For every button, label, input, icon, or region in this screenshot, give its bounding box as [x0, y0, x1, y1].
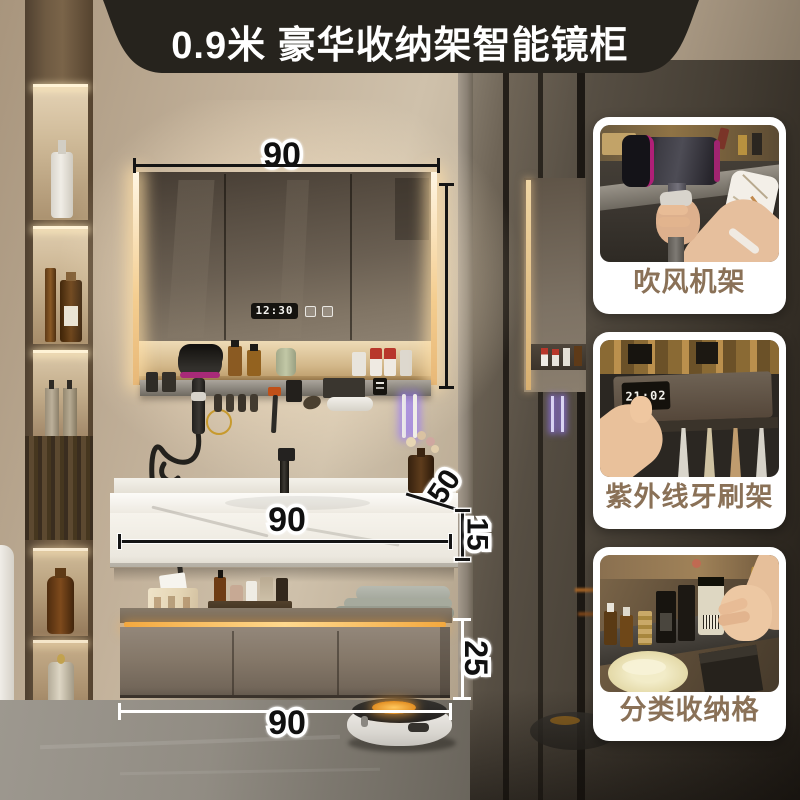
dim-cap	[453, 697, 471, 700]
dim-cap	[455, 558, 470, 561]
banner-title: 0.9米 豪华收纳架智能镜柜	[110, 14, 690, 69]
glass-frame-bar	[577, 60, 585, 800]
niche-led-line	[33, 84, 88, 87]
cabinet-body	[120, 627, 450, 698]
photo-dryer-rim	[714, 140, 720, 182]
shelf-amber-bottle	[228, 346, 242, 376]
gold-towel-ring	[206, 409, 232, 435]
photo-flower-accent	[692, 559, 701, 568]
reflected-uv-toothbrush	[551, 396, 554, 432]
feature-card-label: 紫外线牙刷架	[593, 475, 786, 514]
bottle-cap	[698, 577, 724, 586]
leather-hook-strap	[238, 394, 246, 412]
flower-bottle-neck	[417, 448, 425, 457]
photo-dark-box	[699, 645, 763, 692]
dim-cap	[133, 158, 136, 173]
photo-handle-tip	[668, 237, 684, 262]
hair-dryer-collar	[191, 392, 206, 401]
robot-sensor-slot	[408, 723, 429, 732]
led-strip-left	[133, 172, 139, 385]
led-strip-right	[431, 172, 437, 385]
white-pump-bottle	[246, 581, 257, 603]
shelf-bottle-cap	[250, 344, 258, 351]
shelf-green-bottle	[276, 348, 296, 376]
floor-streak	[120, 768, 380, 776]
drawer-seam	[232, 631, 234, 695]
dropper-cap	[218, 570, 223, 578]
jar-highlight	[622, 659, 666, 675]
photo-gold-bottle	[738, 135, 747, 155]
reflected-bottle	[574, 346, 582, 366]
vase-neck	[55, 568, 66, 578]
dim-cabinet-width: 90	[257, 706, 317, 740]
niche-led-line	[33, 548, 88, 551]
photo-dropper-cap	[607, 603, 614, 612]
photo-shelf-item	[628, 344, 652, 364]
storage-compartments-photo	[600, 555, 779, 692]
shelf-bottle-cap	[231, 340, 239, 347]
white-towel-roll	[327, 397, 373, 411]
light-icon	[322, 306, 333, 317]
uv-toothbrush-rack-photo: 21:02	[600, 340, 779, 477]
dim-cap	[439, 183, 454, 186]
photo-finger	[658, 205, 688, 215]
leather-hook-strap	[226, 394, 234, 412]
photo-cream-jar	[608, 651, 688, 692]
photo-black-bottle	[656, 591, 676, 643]
photo-dropper-bottle	[604, 611, 617, 645]
dried-flower	[417, 431, 426, 440]
bottle-label	[660, 613, 672, 631]
sterilizer-display	[373, 378, 387, 395]
cabinet-top-board	[120, 608, 452, 623]
shelf-red-bottle	[384, 348, 396, 376]
niche-amber-vase	[33, 548, 88, 636]
dim-cap	[118, 703, 121, 720]
photo-gold-band-bottle	[638, 611, 652, 645]
display-glyph	[376, 387, 384, 389]
shelf-red-bottle	[370, 348, 382, 376]
black-accessory-box	[286, 380, 302, 402]
feature-card-label: 分类收纳格	[593, 688, 786, 727]
feature-card-uv-toothbrush-rack: 21:02 紫外线牙刷架	[593, 332, 786, 529]
dim-line-counter-width	[118, 540, 452, 543]
uv-toothbrush	[402, 394, 406, 438]
dim-counter-thickness: 15	[462, 517, 492, 550]
dim-line-mirror-height	[445, 183, 448, 389]
hair-dryer-rack-photo	[600, 125, 779, 262]
mirror-clock-display: 12:30	[251, 303, 298, 319]
wall-switch	[146, 372, 158, 392]
photo-backlit-shelf	[600, 340, 779, 374]
photo-finger	[658, 217, 690, 227]
mirror-reflected-niche	[395, 178, 429, 240]
dried-flower	[431, 445, 439, 453]
clear-bottle	[260, 577, 273, 603]
uv-toothbrush	[413, 394, 417, 438]
shelf-bracket	[323, 378, 365, 398]
dim-cap	[437, 158, 440, 173]
shelf-white-tube	[352, 352, 366, 376]
reflected-cosmetic-tube	[563, 348, 570, 366]
product-image: 12:30	[0, 0, 800, 800]
robot-side-button	[361, 716, 368, 727]
defog-icon	[305, 306, 316, 317]
photo-dryer-face	[622, 135, 654, 187]
shelf-white-bottle	[400, 350, 412, 376]
photo-dropper-cap	[623, 607, 630, 616]
pump-bottle	[45, 388, 59, 438]
wall-outlet	[162, 372, 176, 392]
mirror-door-seam	[350, 174, 352, 340]
photo-toothbrush	[756, 428, 767, 477]
amber-dropper-bottle	[214, 577, 226, 603]
photo-dark-bottle	[752, 133, 762, 155]
cabinet-right-shade	[440, 627, 450, 698]
feature-card-hair-dryer-rack: 吹风机架	[593, 117, 786, 314]
dim-counter-width: 90	[257, 503, 317, 537]
niche-led-line	[33, 640, 88, 643]
glass-frame-bar	[538, 60, 543, 800]
dim-cap	[453, 618, 471, 621]
photo-toothbrush	[730, 428, 741, 477]
feature-card-label: 吹风机架	[593, 260, 786, 299]
reflected-uv-toothbrush	[561, 396, 564, 432]
photo-toothbrush	[678, 428, 689, 477]
photo-dropper-bottle	[620, 615, 633, 647]
pump-head	[49, 380, 54, 389]
display-glyph	[376, 382, 384, 384]
reflected-cosmetic-tube	[541, 348, 548, 366]
leather-hook-strap	[250, 394, 258, 412]
hair-dryer-handle	[192, 378, 205, 434]
dried-flower	[406, 437, 416, 447]
faucet-head	[278, 448, 295, 461]
cup-vein	[742, 174, 768, 199]
photo-black-bottle	[678, 585, 695, 641]
dim-cap	[449, 534, 452, 549]
bottle-barcode	[703, 615, 719, 629]
dim-cap	[455, 509, 470, 512]
shelf-amber-bottle	[247, 350, 261, 376]
drawer-seam	[337, 631, 339, 695]
dim-cap	[118, 534, 121, 549]
dim-cabinet-height: 25	[460, 640, 492, 676]
photo-shelf-item	[696, 342, 718, 364]
photo-fingertip	[630, 396, 652, 423]
dark-bottle	[276, 578, 288, 603]
amber-spray-bottle	[45, 268, 56, 342]
leather-hook-strap	[214, 394, 222, 412]
feature-card-storage-compartments: 分类收纳格	[593, 547, 786, 741]
amber-vase	[47, 576, 74, 634]
dim-cap	[449, 703, 452, 720]
mirror-door-seam	[224, 174, 226, 340]
photo-toothbrush	[704, 428, 715, 477]
jar-lid-knob	[57, 654, 65, 664]
toilet-edge	[0, 545, 14, 717]
reflected-cosmetic-tube	[552, 349, 559, 366]
dim-cap	[439, 386, 454, 389]
dim-line-mirror-width	[133, 164, 440, 167]
